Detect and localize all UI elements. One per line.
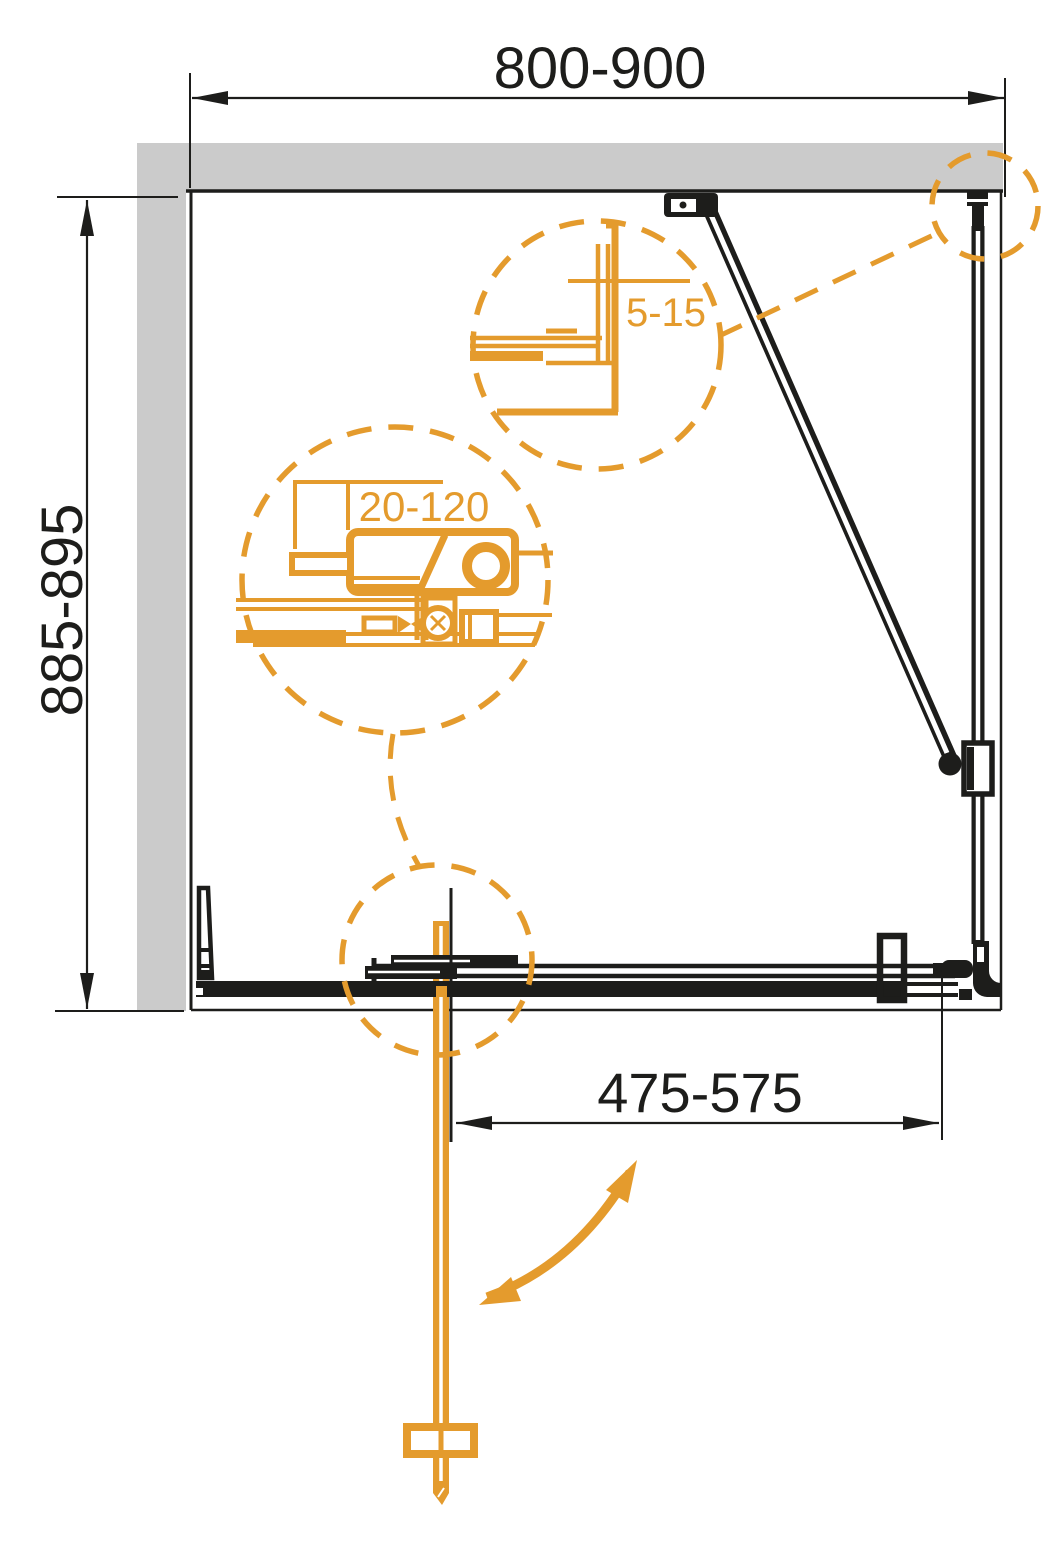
dim-overall-depth-label: 885-895	[30, 504, 95, 717]
wall-top-strip	[137, 143, 1003, 190]
hinge-pin	[680, 202, 687, 209]
detail-gap-label: 5-15	[626, 291, 706, 335]
door-glass-diagonal-gap	[708, 208, 947, 753]
detail-wall-profile-20-120: 20-120	[236, 427, 553, 733]
dim-arrow-right	[968, 91, 1004, 105]
door-swing-arrow	[479, 1160, 637, 1305]
connector-insert	[967, 747, 974, 790]
rail-bottom-bar	[196, 981, 905, 997]
detail-clamp-jaw	[398, 616, 411, 633]
rail-notch	[196, 988, 203, 995]
detail-end-block	[462, 612, 496, 642]
detail-wall-tongue	[292, 555, 350, 573]
rail-knob	[941, 960, 973, 978]
dimension-bottom: 475-575	[456, 976, 942, 1140]
detail-glass-bar	[470, 351, 543, 361]
wall-profile-foot	[199, 970, 213, 980]
detail-clamp-block	[364, 618, 395, 632]
corner-elbow-window	[977, 947, 984, 962]
door-edge-cap	[939, 753, 962, 776]
technical-drawing-page: 800-900 885-895 475-575	[0, 0, 1063, 1545]
detail-roller-icon	[467, 547, 505, 585]
corner-foot	[959, 989, 972, 1000]
shower-enclosure-plan-drawing: 800-900 885-895 475-575	[0, 0, 1063, 1545]
door-hinge-bracket	[664, 193, 718, 217]
dim-arrow-right	[903, 1116, 939, 1130]
dim-arrow-bottom	[80, 973, 94, 1009]
detail-adjustment-label: 20-120	[359, 483, 490, 530]
detail-corner-5-15: 5-15	[470, 221, 721, 469]
dim-arrow-top	[80, 200, 94, 236]
leader-to-pivot-icon	[390, 734, 419, 866]
left-wall-profile	[199, 888, 213, 980]
dim-arrow-left	[456, 1116, 492, 1130]
dim-door-opening-label: 475-575	[597, 1061, 803, 1124]
detail-rail-bar	[236, 630, 346, 643]
door-pivot-block	[436, 986, 447, 997]
dim-arrow-left	[192, 91, 228, 105]
bottom-rail	[196, 936, 973, 1000]
fixed-panel	[964, 192, 992, 944]
wall-left-strip	[137, 143, 186, 1011]
dim-overall-width-label: 800-900	[494, 36, 707, 101]
pivot-door-diagonal	[704, 197, 962, 776]
panel-top-clamp-stem	[972, 206, 984, 228]
